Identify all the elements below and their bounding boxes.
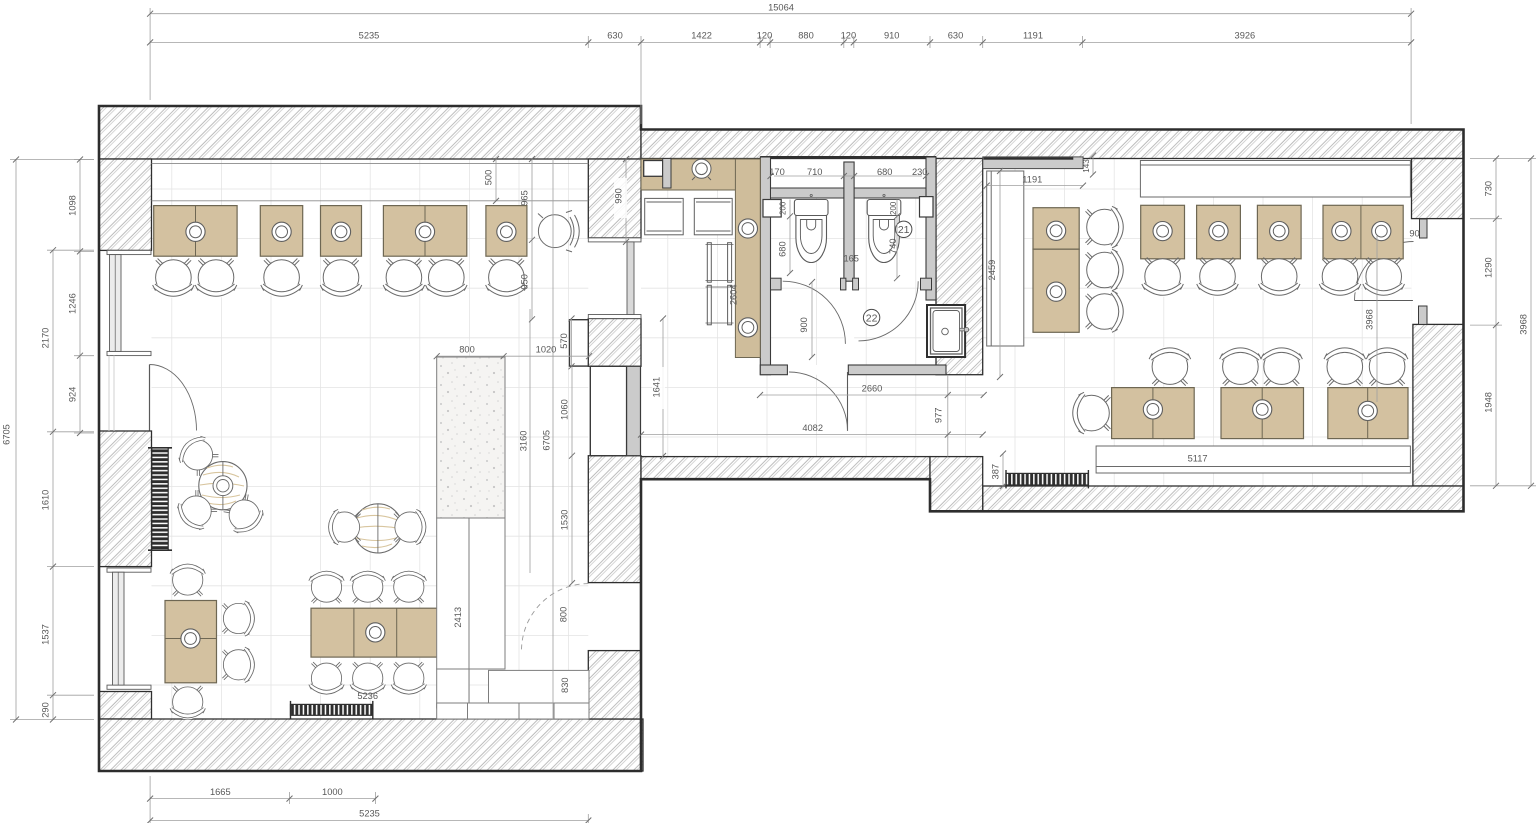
svg-text:143: 143 xyxy=(1082,159,1091,173)
svg-text:1246: 1246 xyxy=(68,293,78,314)
svg-text:924: 924 xyxy=(68,387,78,403)
svg-text:2604: 2604 xyxy=(729,284,739,305)
svg-text:5235: 5235 xyxy=(359,809,380,819)
svg-text:1948: 1948 xyxy=(1484,392,1494,413)
svg-text:680: 680 xyxy=(877,167,893,177)
svg-text:200: 200 xyxy=(779,201,788,215)
svg-text:1641: 1641 xyxy=(652,377,662,398)
svg-text:290: 290 xyxy=(41,702,51,718)
svg-text:165: 165 xyxy=(843,254,859,264)
svg-text:21: 21 xyxy=(898,224,910,236)
svg-text:1422: 1422 xyxy=(691,31,712,41)
svg-text:120: 120 xyxy=(841,31,857,41)
svg-text:6705: 6705 xyxy=(542,430,552,451)
svg-text:387: 387 xyxy=(991,464,1001,480)
svg-text:2459: 2459 xyxy=(987,260,997,281)
svg-text:1665: 1665 xyxy=(210,787,231,797)
svg-text:2170: 2170 xyxy=(41,328,51,349)
svg-text:730: 730 xyxy=(1484,181,1494,197)
svg-text:1191: 1191 xyxy=(1022,175,1042,185)
svg-text:710: 710 xyxy=(807,167,823,177)
svg-text:880: 880 xyxy=(798,31,814,41)
svg-text:230: 230 xyxy=(912,167,928,177)
svg-text:2413: 2413 xyxy=(453,607,463,628)
svg-text:3968: 3968 xyxy=(1365,309,1375,330)
svg-text:800: 800 xyxy=(559,607,569,623)
svg-text:1060: 1060 xyxy=(560,399,570,420)
svg-text:120: 120 xyxy=(757,31,773,41)
svg-text:965: 965 xyxy=(520,190,530,206)
svg-text:1537: 1537 xyxy=(41,624,51,645)
svg-text:200: 200 xyxy=(889,201,898,215)
svg-text:500: 500 xyxy=(484,170,494,186)
svg-text:630: 630 xyxy=(948,31,964,41)
svg-text:5236: 5236 xyxy=(357,691,378,701)
svg-text:3160: 3160 xyxy=(519,431,529,452)
svg-text:5117: 5117 xyxy=(1188,454,1208,464)
svg-text:1098: 1098 xyxy=(68,195,78,216)
svg-text:990: 990 xyxy=(614,188,624,204)
svg-text:1290: 1290 xyxy=(1484,257,1494,278)
svg-text:5235: 5235 xyxy=(359,31,380,41)
svg-text:900: 900 xyxy=(799,317,809,333)
svg-text:2660: 2660 xyxy=(862,384,883,394)
svg-text:630: 630 xyxy=(607,31,623,41)
svg-text:90: 90 xyxy=(1409,229,1419,239)
svg-text:830: 830 xyxy=(560,677,570,693)
svg-text:570: 570 xyxy=(559,333,569,349)
svg-text:3926: 3926 xyxy=(1235,31,1256,41)
svg-text:1530: 1530 xyxy=(560,510,570,531)
svg-text:740: 740 xyxy=(888,238,898,254)
svg-text:680: 680 xyxy=(778,241,788,257)
svg-text:4082: 4082 xyxy=(802,423,823,433)
svg-text:1191: 1191 xyxy=(1023,31,1043,41)
svg-text:1000: 1000 xyxy=(322,787,343,797)
svg-text:170: 170 xyxy=(769,167,785,177)
svg-text:1610: 1610 xyxy=(41,490,51,511)
svg-text:910: 910 xyxy=(884,31,900,41)
svg-text:3968: 3968 xyxy=(1519,314,1529,335)
svg-text:977: 977 xyxy=(934,408,944,424)
svg-text:800: 800 xyxy=(459,345,475,355)
svg-text:1020: 1020 xyxy=(536,345,557,355)
svg-text:6705: 6705 xyxy=(2,424,12,445)
svg-text:950: 950 xyxy=(520,274,530,290)
svg-text:15064: 15064 xyxy=(768,3,794,13)
svg-text:22: 22 xyxy=(866,312,878,324)
